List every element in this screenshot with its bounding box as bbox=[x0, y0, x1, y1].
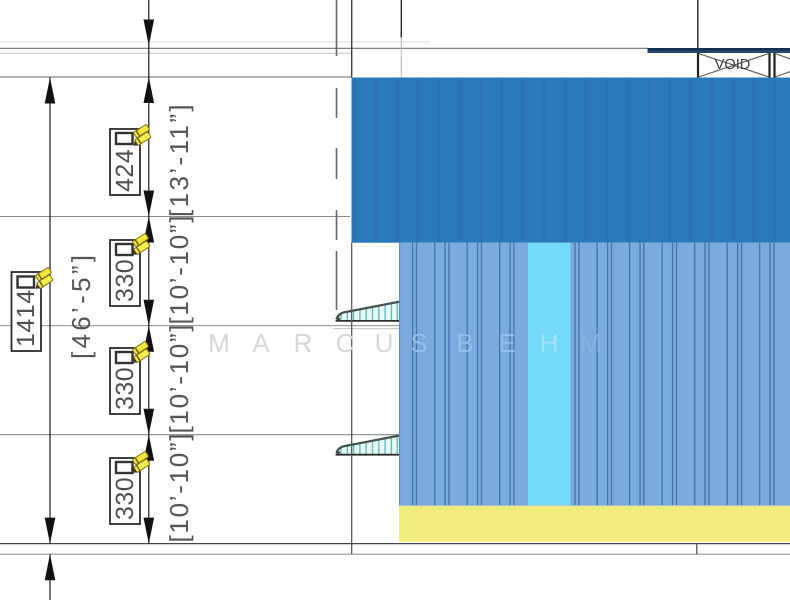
svg-text:[10’-10”]: [10’-10”] bbox=[164, 323, 194, 434]
svg-text:[13’-11”]: [13’-11”] bbox=[164, 102, 194, 217]
svg-text:330: 330 bbox=[111, 477, 139, 520]
svg-text:VOID: VOID bbox=[715, 57, 751, 73]
svg-text:M: M bbox=[208, 328, 230, 358]
svg-text:M: M bbox=[580, 328, 602, 358]
svg-text:[10’-10”]: [10’-10”] bbox=[164, 432, 194, 543]
svg-text:1414: 1414 bbox=[12, 289, 40, 347]
svg-text:S: S bbox=[410, 328, 427, 358]
svg-text:330: 330 bbox=[111, 367, 139, 410]
svg-text:H: H bbox=[540, 328, 559, 358]
svg-text:[46’-5”]: [46’-5”] bbox=[66, 252, 96, 359]
svg-text:[10’-10”]: [10’-10”] bbox=[164, 214, 194, 325]
svg-text:C: C bbox=[336, 328, 355, 358]
svg-text:U: U bbox=[375, 328, 394, 358]
svg-text:424: 424 bbox=[111, 149, 139, 192]
svg-text:B: B bbox=[456, 328, 473, 358]
svg-text:330: 330 bbox=[111, 259, 139, 302]
svg-text:A: A bbox=[252, 328, 270, 358]
svg-text:E: E bbox=[498, 328, 515, 358]
svg-text:R: R bbox=[294, 328, 313, 358]
